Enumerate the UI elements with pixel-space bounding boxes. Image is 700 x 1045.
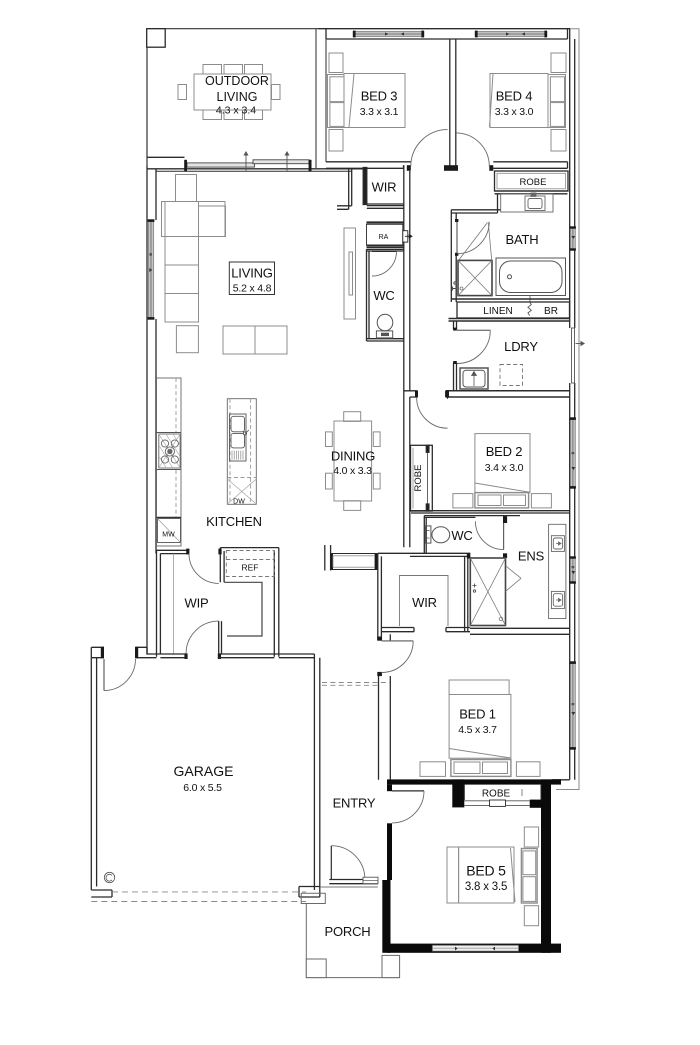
- svg-text:5.2 x 4.8: 5.2 x 4.8: [233, 283, 272, 295]
- svg-text:LDRY: LDRY: [504, 339, 538, 354]
- svg-text:OUTDOOR: OUTDOOR: [205, 74, 269, 88]
- svg-text:MW: MW: [162, 532, 175, 539]
- svg-text:BR: BR: [544, 306, 558, 317]
- svg-text:ENS: ENS: [518, 549, 545, 564]
- svg-text:3.3 x 3.1: 3.3 x 3.1: [360, 106, 399, 118]
- svg-text:ROBE: ROBE: [413, 465, 424, 492]
- svg-text:DW: DW: [233, 499, 245, 506]
- svg-text:PORCH: PORCH: [325, 924, 371, 939]
- svg-text:3.4 x 3.0: 3.4 x 3.0: [485, 462, 524, 474]
- svg-text:ROBE: ROBE: [520, 177, 547, 188]
- svg-text:WIP: WIP: [185, 596, 209, 611]
- svg-text:ROBE: ROBE: [482, 789, 511, 800]
- svg-text:GARAGE: GARAGE: [174, 763, 234, 779]
- svg-text:BED 2: BED 2: [486, 444, 523, 459]
- svg-text:WIR: WIR: [372, 180, 397, 195]
- svg-text:BED 1: BED 1: [459, 707, 496, 722]
- svg-text:ENTRY: ENTRY: [333, 796, 376, 811]
- svg-text:DINING: DINING: [331, 449, 375, 464]
- svg-text:LIVING: LIVING: [217, 90, 258, 104]
- svg-text:REF: REF: [242, 563, 259, 573]
- svg-text:BED 4: BED 4: [496, 89, 533, 104]
- svg-text:4.3 x 3.4: 4.3 x 3.4: [216, 105, 256, 117]
- svg-text:BATH: BATH: [506, 232, 539, 247]
- svg-text:LINEN: LINEN: [483, 306, 512, 317]
- svg-text:LIVING: LIVING: [231, 266, 273, 281]
- svg-text:KITCHEN: KITCHEN: [206, 514, 262, 529]
- svg-text:RA: RA: [379, 234, 389, 241]
- svg-text:BED 3: BED 3: [361, 89, 398, 104]
- svg-text:4.5 x 3.7: 4.5 x 3.7: [458, 724, 497, 736]
- svg-text:WC: WC: [373, 288, 394, 303]
- svg-text:BED 5: BED 5: [466, 863, 506, 879]
- svg-text:3.8 x 3.5: 3.8 x 3.5: [465, 881, 507, 893]
- svg-text:3.3 x 3.0: 3.3 x 3.0: [495, 106, 534, 118]
- svg-text:WIR: WIR: [412, 595, 437, 610]
- svg-text:WC: WC: [451, 528, 472, 543]
- svg-text:6.0 x 5.5: 6.0 x 5.5: [183, 782, 222, 794]
- svg-text:4.0 x 3.3: 4.0 x 3.3: [333, 465, 372, 477]
